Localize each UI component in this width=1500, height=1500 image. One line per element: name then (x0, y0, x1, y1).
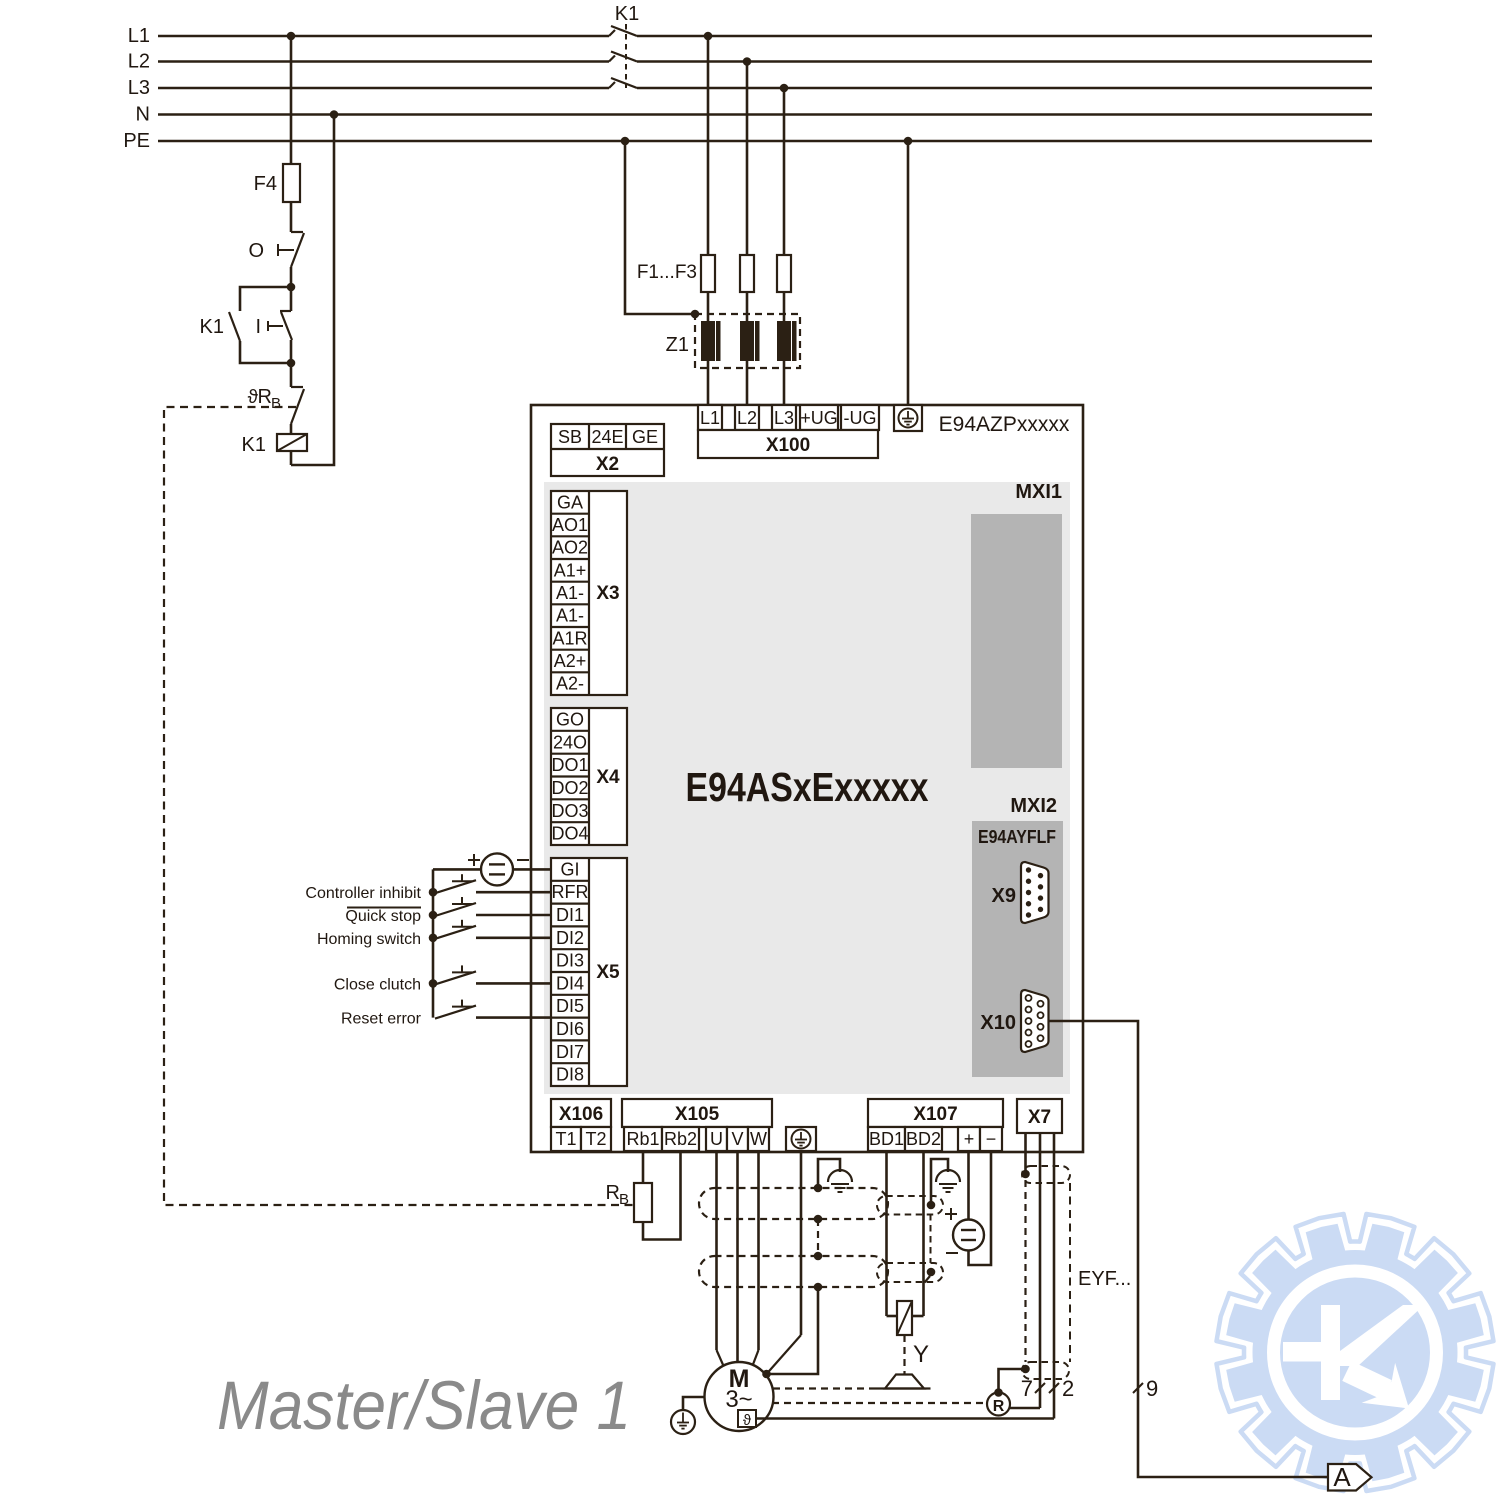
svg-text:T2: T2 (585, 1129, 606, 1149)
svg-text:DI8: DI8 (556, 1065, 584, 1085)
svg-text:DO3: DO3 (551, 801, 588, 821)
svg-text:L1: L1 (700, 408, 720, 428)
svg-text:Rb2: Rb2 (664, 1129, 697, 1149)
svg-text:DI2: DI2 (556, 928, 584, 948)
svg-text:SB: SB (558, 427, 582, 447)
svg-text:DO4: DO4 (551, 824, 588, 844)
svg-text:GO: GO (556, 709, 584, 729)
svg-text:A2-: A2- (556, 674, 584, 694)
svg-text:F1...F3: F1...F3 (637, 262, 697, 283)
svg-text:X7: X7 (1028, 1107, 1051, 1128)
svg-text:AO1: AO1 (552, 515, 588, 535)
svg-text:MXI2: MXI2 (1010, 795, 1057, 817)
svg-text:X100: X100 (766, 435, 810, 456)
svg-text:T1: T1 (555, 1129, 576, 1149)
svg-text:+UG: +UG (800, 408, 838, 428)
svg-text:MXI1: MXI1 (1015, 481, 1062, 503)
svg-text:X4: X4 (596, 767, 620, 788)
svg-text:9: 9 (1146, 1376, 1158, 1401)
svg-text:24E: 24E (591, 427, 623, 447)
svg-text:A1R: A1R (552, 628, 587, 648)
svg-text:Reset error: Reset error (341, 1011, 422, 1028)
svg-text:RFR: RFR (552, 882, 589, 902)
svg-text:X5: X5 (596, 962, 620, 983)
svg-text:K1: K1 (242, 434, 266, 456)
svg-text:O: O (248, 240, 264, 262)
svg-text:I: I (255, 316, 261, 338)
svg-text:DI6: DI6 (556, 1019, 584, 1039)
svg-text:DI5: DI5 (556, 996, 584, 1016)
svg-text:BD1: BD1 (869, 1129, 904, 1149)
svg-text:GI: GI (560, 859, 579, 879)
svg-text:K1: K1 (200, 316, 224, 338)
svg-text:Homing switch: Homing switch (317, 931, 421, 948)
svg-text:Y: Y (913, 1341, 929, 1368)
svg-text:DI7: DI7 (556, 1042, 584, 1062)
svg-text:DO2: DO2 (551, 778, 588, 798)
svg-text:K1: K1 (615, 3, 639, 25)
svg-text:U: U (710, 1129, 723, 1149)
svg-text:R: R (606, 1182, 620, 1204)
svg-text:Z1: Z1 (666, 334, 689, 356)
svg-text:EYF...: EYF... (1078, 1268, 1131, 1290)
svg-text:+: + (964, 1129, 975, 1149)
svg-text:X2: X2 (596, 454, 619, 475)
svg-text:N: N (136, 104, 150, 126)
svg-text:24O: 24O (553, 732, 587, 752)
svg-text:B: B (271, 395, 281, 412)
svg-text:PE: PE (123, 130, 150, 152)
svg-text:X3: X3 (596, 583, 619, 604)
svg-text:A: A (1333, 1462, 1351, 1492)
svg-text:X9: X9 (992, 885, 1016, 907)
svg-text:Controller inhibit: Controller inhibit (305, 885, 421, 902)
svg-text:X107: X107 (913, 1104, 957, 1125)
svg-text:Rb1: Rb1 (626, 1129, 659, 1149)
svg-text:A1+: A1+ (554, 560, 587, 580)
svg-text:W: W (750, 1129, 767, 1149)
svg-text:L3: L3 (128, 77, 150, 99)
svg-text:L2: L2 (128, 51, 150, 73)
svg-text:E94AYFLF: E94AYFLF (978, 827, 1056, 847)
svg-text:Master/Slave 1: Master/Slave 1 (217, 1367, 631, 1444)
svg-text:DI1: DI1 (556, 905, 584, 925)
svg-text:Close clutch: Close clutch (334, 976, 421, 993)
svg-text:A2+: A2+ (554, 651, 587, 671)
svg-text:DI3: DI3 (556, 951, 584, 971)
svg-text:Quick stop: Quick stop (345, 908, 421, 925)
svg-text:E94AZPxxxxx: E94AZPxxxxx (939, 413, 1070, 436)
svg-text:F4: F4 (254, 173, 277, 195)
svg-text:X105: X105 (675, 1104, 720, 1125)
svg-text:−: − (986, 1129, 997, 1149)
svg-text:AO2: AO2 (552, 538, 588, 558)
svg-text:GA: GA (557, 492, 583, 512)
svg-text:-UG: -UG (844, 408, 877, 428)
svg-text:DI4: DI4 (556, 973, 584, 993)
svg-text:L2: L2 (737, 408, 757, 428)
svg-text:L1: L1 (128, 25, 150, 47)
svg-text:ϑ: ϑ (743, 1412, 752, 1429)
svg-text:E94ASxExxxxx: E94ASxExxxxx (686, 764, 929, 810)
svg-text:GE: GE (632, 427, 658, 447)
svg-text:R: R (258, 386, 272, 408)
svg-text:2: 2 (1062, 1376, 1074, 1401)
svg-text:L3: L3 (774, 408, 794, 428)
svg-text:X106: X106 (559, 1104, 603, 1125)
svg-text:BD2: BD2 (906, 1129, 941, 1149)
svg-text:A1-: A1- (556, 583, 584, 603)
svg-text:R: R (993, 1398, 1005, 1415)
svg-text:V: V (731, 1129, 743, 1149)
svg-text:DO1: DO1 (551, 755, 588, 775)
svg-text:7: 7 (1021, 1376, 1033, 1401)
svg-text:X10: X10 (980, 1012, 1016, 1034)
svg-text:3~: 3~ (725, 1386, 752, 1413)
svg-text:B: B (619, 1191, 629, 1208)
svg-text:A1-: A1- (556, 606, 584, 626)
